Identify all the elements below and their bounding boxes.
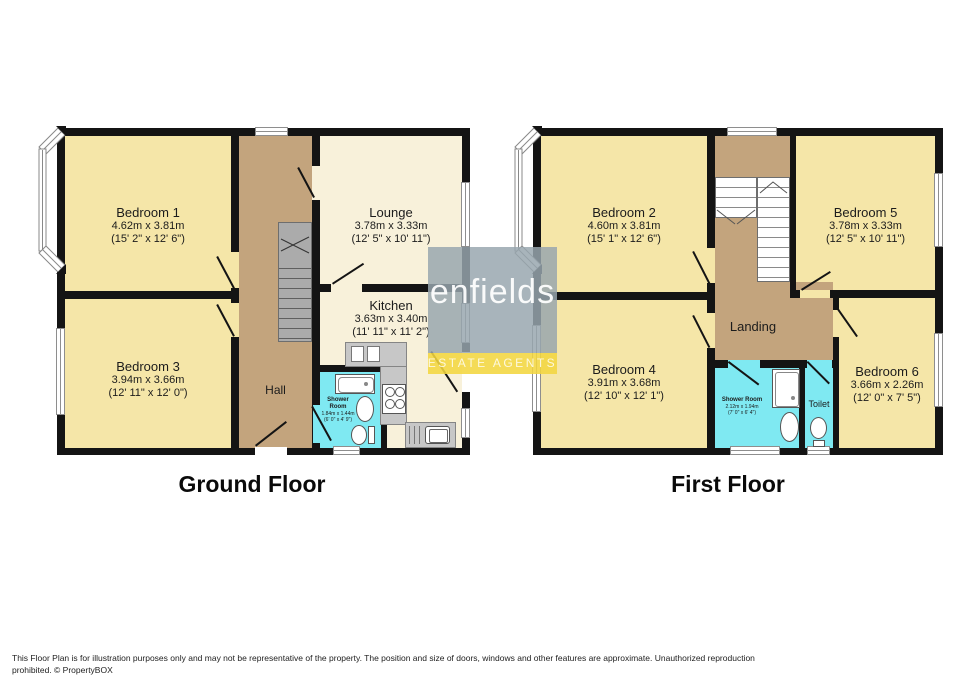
drain-icon [791,396,795,400]
window [461,408,470,438]
room-label-hall: Hall [239,384,312,398]
room-label-bedroom5: Bedroom 5 3.78m x 3.33m (12' 5" x 10' 11… [796,206,935,246]
bedroom1-metric: 4.62m x 3.81m [65,220,231,233]
bedroom6-imperial: (12' 0" x 7' 5") [839,392,935,405]
bath-inner-icon [338,377,374,393]
room-label-bedroom4: Bedroom 4 3.91m x 3.68m (12' 10" x 12' 1… [541,363,707,403]
toilet-base-icon [813,440,825,447]
bay-window [36,126,66,274]
burner-icon [385,399,395,409]
drainer-line [419,426,420,444]
stair-up-arrow [757,179,790,195]
appliance-icon [367,346,380,362]
lounge-name: Lounge [320,206,462,220]
shower-room-ff-name: Shower Room [716,397,768,404]
bath-icon [335,374,375,394]
watermark-brand-logo: enfields [420,272,565,312]
stair-treads [279,259,311,341]
front-door-opening [255,447,287,455]
stairs [278,222,312,342]
door-opening [800,290,830,298]
stair-direction-mark [279,229,311,257]
lounge-imperial: (12' 5" x 10' 11") [320,233,462,246]
window [730,446,780,455]
appliance-icon [351,346,364,362]
bedroom3-name: Bedroom 3 [65,360,231,374]
room-label-landing: Landing [697,320,809,335]
bedroom4-metric: 3.91m x 3.68m [541,377,707,390]
door-opening [833,310,839,337]
room-label-bedroom1: Bedroom 1 4.62m x 3.81m (15' 2" x 12' 6"… [65,206,231,246]
shower-tray-icon [772,369,800,408]
sink-icon [425,426,450,444]
room-label-shower-room-ff: Shower Room 2.12m x 1.94m (7' 0" x 6' 4"… [716,397,768,416]
room-label-shower-room-gf: Shower Room 1.84m x 1.44m (6' 0" x 4' 9"… [318,397,358,423]
wall [231,136,239,448]
shower-room-gf-name: Shower Room [318,397,358,411]
watermark-tagline: ESTATE AGENTS [420,354,565,373]
room-label-bedroom2: Bedroom 2 4.60m x 3.81m (15' 1" x 12' 6"… [541,206,707,246]
lounge-metric: 3.78m x 3.33m [320,220,462,233]
window [934,333,943,407]
bedroom3-metric: 3.94m x 3.66m [65,374,231,387]
stair-head-floor [715,136,790,177]
shower-room-gf-imperial: (6' 0" x 4' 9") [318,417,358,423]
wall [707,136,715,448]
bedroom2-imperial: (15' 1" x 12' 6") [541,233,707,246]
burner-icon [385,387,395,397]
sink-bowl-icon [429,429,448,443]
ground-floor-plan [57,128,470,455]
window [56,328,65,415]
bedroom4-name: Bedroom 4 [541,363,707,377]
door-opening [331,284,362,292]
bedroom1-name: Bedroom 1 [65,206,231,220]
bedroom3-imperial: (12' 11" x 12' 0") [65,387,231,400]
shower-room-ff-imperial: (7' 0" x 6' 4") [716,410,768,416]
window [807,446,830,455]
drainer-line [409,426,410,444]
toilet-icon [810,417,827,439]
basin-icon [356,396,374,422]
room-label-bedroom6: Bedroom 6 3.66m x 2.26m (12' 0" x 7' 5") [839,365,935,405]
bedroom6-name: Bedroom 6 [839,365,935,379]
bedroom5-imperial: (12' 5" x 10' 11") [796,233,935,246]
hall-name: Hall [239,384,312,398]
toilet-icon [351,425,367,445]
cistern-icon [368,426,375,444]
bedroom2-metric: 4.60m x 3.81m [541,220,707,233]
drain-icon [364,382,368,386]
bedroom6-metric: 3.66m x 2.26m [839,379,935,392]
window [934,173,943,247]
window [333,446,360,455]
disclaimer-line2: prohibited. © PropertyBOX [12,664,972,676]
burner-icon [395,399,405,409]
floorplan-canvas: Bedroom 1 4.62m x 3.81m (15' 2" x 12' 6"… [0,0,980,686]
toilet-name: Toilet [801,399,837,409]
door-opening [707,248,715,283]
wall [65,291,231,299]
window [461,182,470,247]
bedroom5-name: Bedroom 5 [796,206,935,220]
window [727,127,777,136]
bedroom1-imperial: (15' 2" x 12' 6") [65,233,231,246]
burner-icon [395,387,405,397]
ground-floor-title: Ground Floor [57,471,447,498]
stairwell-void [715,218,757,282]
room-label-bedroom3: Bedroom 3 3.94m x 3.66m (12' 11" x 12' 0… [65,360,231,400]
hob-icon [382,384,406,414]
room-label-lounge: Lounge 3.78m x 3.33m (12' 5" x 10' 11") [320,206,462,246]
window [255,127,288,136]
wall [541,292,707,300]
bedroom4-imperial: (12' 10" x 12' 1") [541,390,707,403]
room-label-toilet: Toilet [801,399,837,409]
bedroom5-metric: 3.78m x 3.33m [796,220,935,233]
shower-tray-inner-icon [775,372,799,407]
first-floor-title: First Floor [533,471,923,498]
basin-icon [780,412,799,442]
landing-name: Landing [697,320,809,335]
disclaimer-line1: This Floor Plan is for illustration purp… [12,652,972,664]
bedroom2-name: Bedroom 2 [541,206,707,220]
drainer-line [414,426,415,444]
stair-winder-mark [715,208,757,226]
